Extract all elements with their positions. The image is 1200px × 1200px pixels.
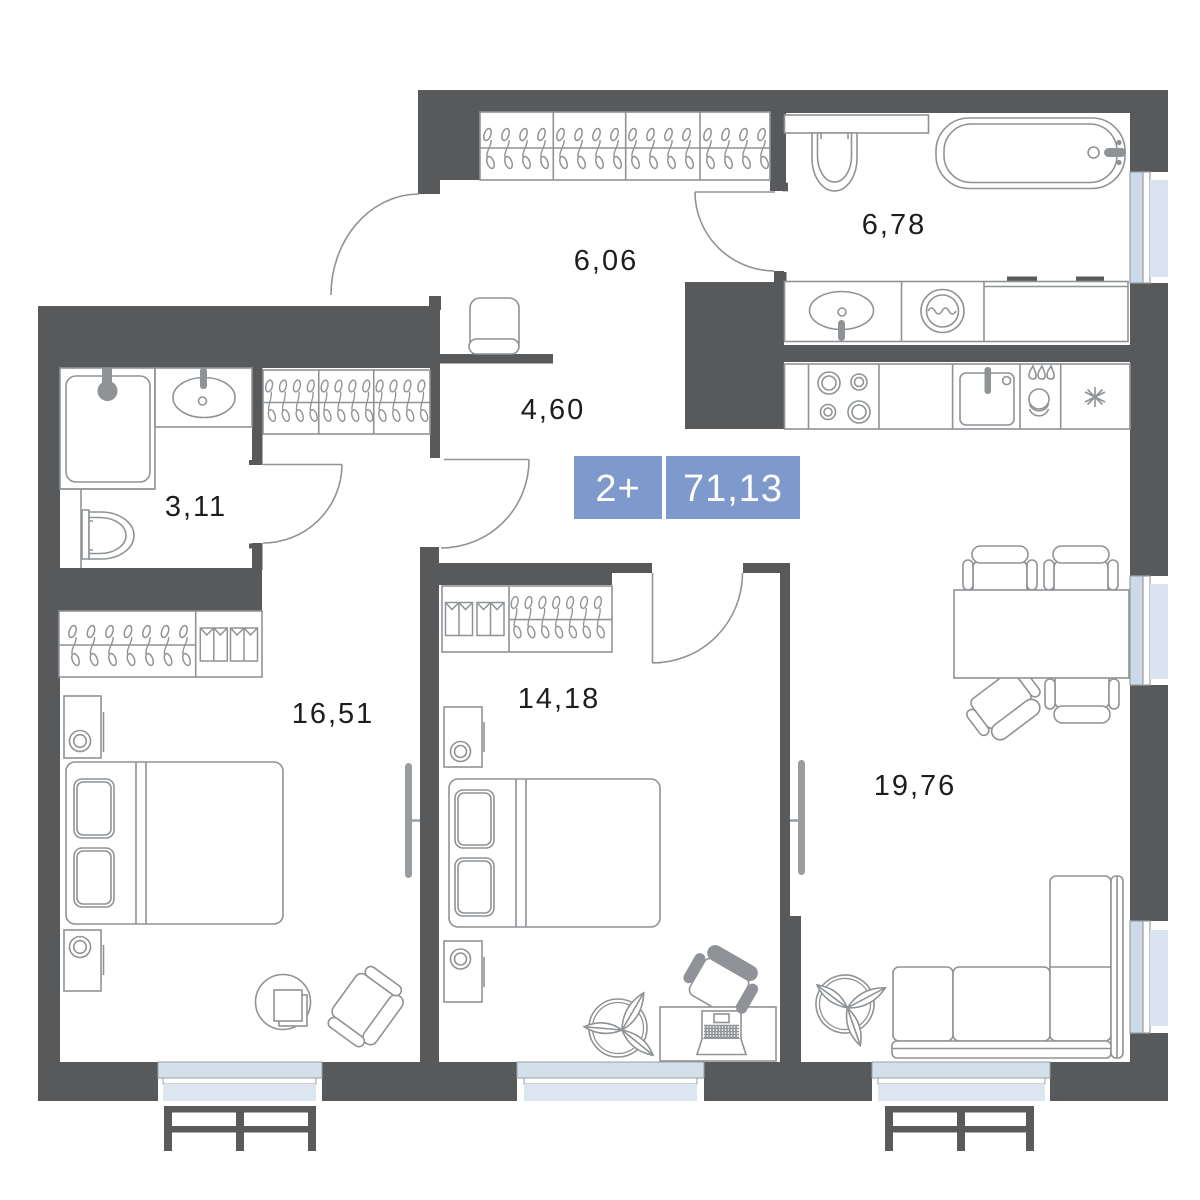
svg-text:19,76: 19,76 <box>874 770 957 802</box>
svg-text:4,60: 4,60 <box>521 394 585 426</box>
svg-text:6,78: 6,78 <box>862 209 926 241</box>
svg-text:71,13: 71,13 <box>683 468 783 510</box>
svg-text:6,06: 6,06 <box>574 245 638 277</box>
svg-text:16,51: 16,51 <box>292 698 375 730</box>
svg-text:3,11: 3,11 <box>165 491 227 523</box>
svg-text:14,18: 14,18 <box>518 683 601 715</box>
svg-text:2+: 2+ <box>595 468 640 510</box>
